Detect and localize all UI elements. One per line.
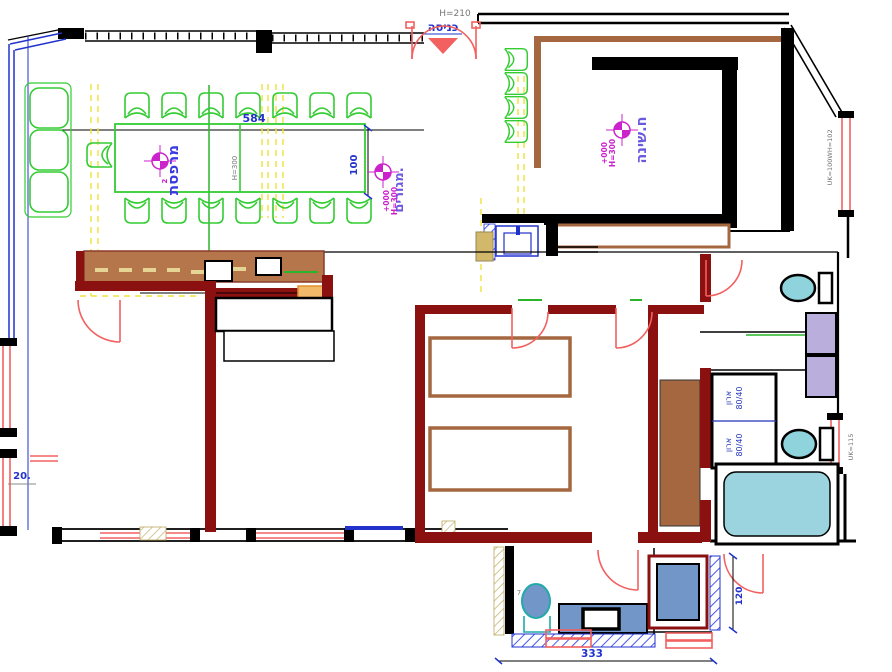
bed [430,428,570,490]
chair [125,198,149,223]
window-tag-upper: UK=100 [826,159,834,186]
cooktop [256,258,281,275]
shower [657,564,699,620]
floor-plan-canvas: H=210 כניסה [0,0,892,672]
fixture-note: 7 [517,589,521,597]
chair [125,93,149,118]
level-height: H=300 [608,139,617,167]
toilet [782,430,816,458]
sink [205,261,232,281]
terrace-room-label: מרפסת [164,145,182,195]
middle-rooms [415,305,704,590]
chair [347,198,371,223]
bedroom-label: ח.שינה [634,116,650,163]
left-dim: 20. [13,471,31,482]
bed [430,338,570,396]
window-tag-top: WH=102 [826,129,834,158]
kitchen [75,251,334,532]
table-length-dim: 584 [243,112,266,125]
door-arc [78,300,120,342]
door-arc [706,260,742,296]
island-counter [224,331,334,361]
closet-size: 80/40 [735,386,744,409]
toilet [781,275,815,301]
chairs-bottom-row [125,198,371,223]
entrance-arrow-icon [428,38,458,54]
door-arc [616,308,652,348]
bathrooms-right: ארון 80/40 ארון 80/40 [700,254,838,544]
chair [162,93,186,118]
entrance: H=210 כניסה [406,9,480,59]
chair [347,93,371,118]
bathtub [724,472,830,536]
entrance-height-label: H=210 [439,9,471,19]
closet-label: ארון [724,391,733,405]
chair [162,198,186,223]
chair [505,49,528,71]
cabinet [806,356,836,397]
shower-dim: 120 [735,587,745,606]
island-counter [216,298,332,331]
chair [236,198,260,223]
toilet-tank [819,273,832,303]
closet-label: ארון [724,438,733,452]
level-marker-index: 2 [161,178,169,183]
table-width-dim: 100 [349,155,360,176]
chair [199,93,223,118]
level-height: H=300 [390,187,399,215]
bedroom-chairs [505,49,528,143]
chair [310,93,334,118]
closet-size: 80/40 [735,433,744,456]
window-tag-lower: UK=115 [847,434,855,461]
table-height-note: H=300 [231,156,239,181]
sofa [25,83,71,217]
sink [583,609,619,629]
bottom-dim: 333 [581,648,603,660]
floor-plan-drawing: H=210 כניסה [0,0,892,672]
shower-room: 120 [648,553,763,648]
cabinet [806,313,836,354]
door-arc [598,550,638,590]
toilet [522,584,550,618]
chair [199,198,223,223]
toilet-tank [820,428,833,460]
wardrobe [660,380,700,526]
sideboard [549,225,729,247]
column [476,232,493,261]
chair [310,198,334,223]
